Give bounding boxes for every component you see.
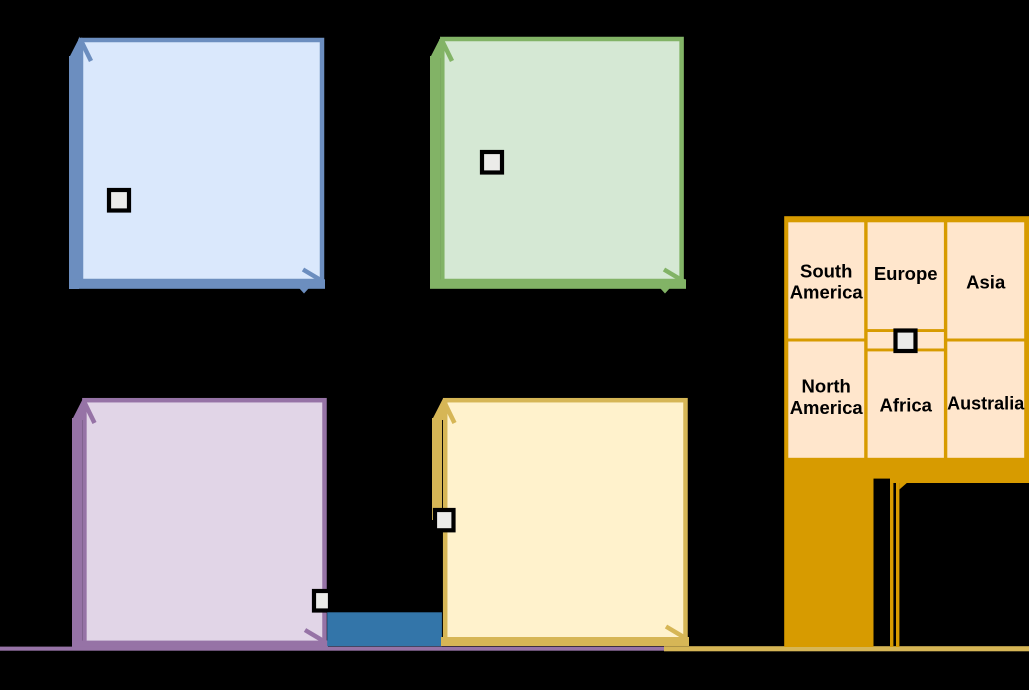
svg-text:South: South xyxy=(800,260,852,281)
svg-text:Australia: Australia xyxy=(947,394,1025,414)
svg-text:America: America xyxy=(790,397,864,418)
svg-text:Europe: Europe xyxy=(874,263,938,284)
svg-text:North: North xyxy=(802,376,851,397)
svg-text:Asia: Asia xyxy=(966,271,1006,292)
svg-text:America: America xyxy=(790,281,864,302)
svg-text:Africa: Africa xyxy=(879,394,932,415)
